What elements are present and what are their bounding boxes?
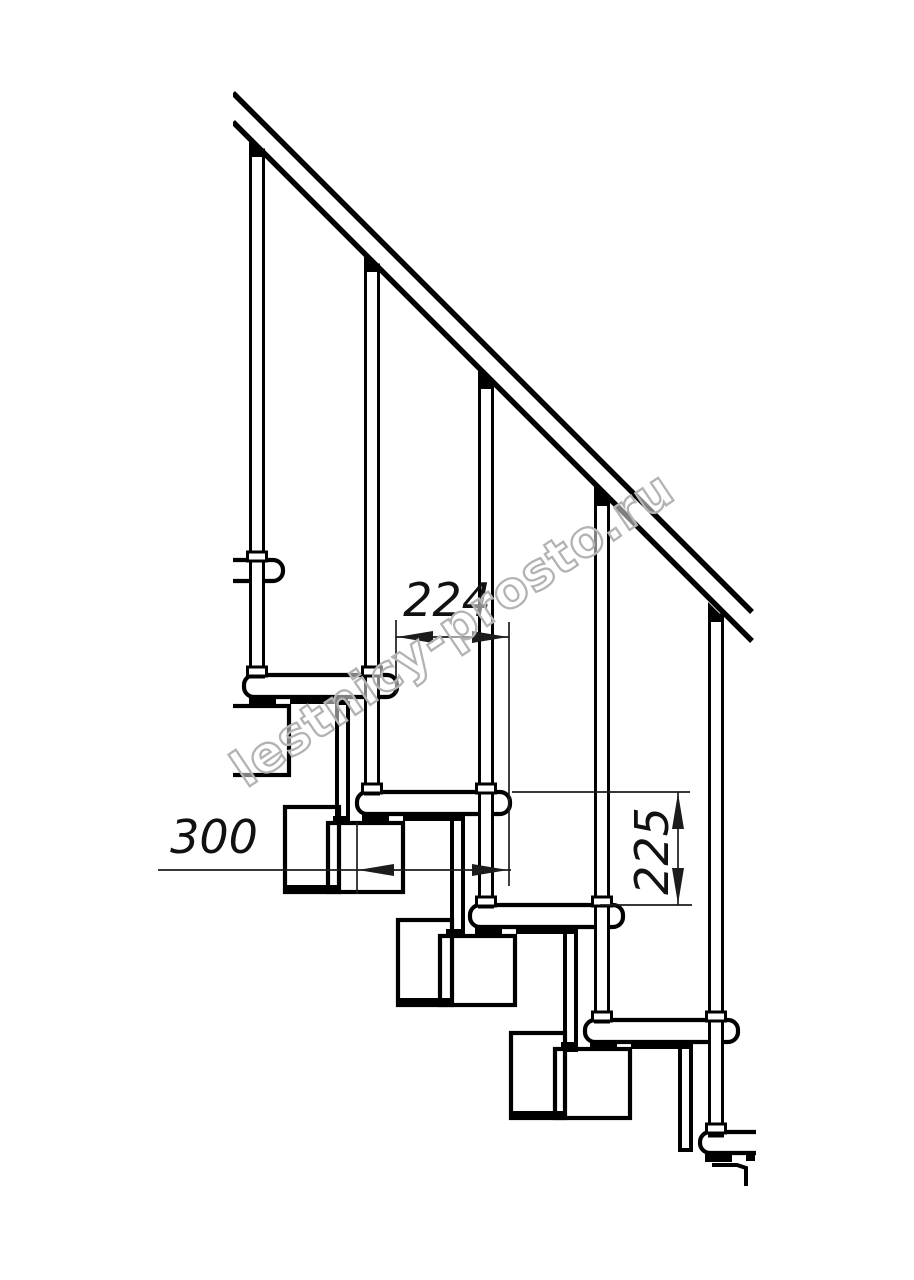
module-strip	[680, 1043, 691, 1150]
connector-plate	[631, 1040, 689, 1049]
baluster	[251, 150, 264, 677]
connector-plate	[746, 1152, 755, 1161]
baluster-collar	[248, 552, 267, 561]
connector-plate	[403, 812, 461, 821]
baluster	[596, 499, 609, 1022]
baluster-collar	[707, 1012, 726, 1021]
baluster	[480, 382, 493, 907]
left-crop-cover	[0, 0, 233, 1280]
sleeve-base-plate	[398, 998, 452, 1006]
baluster-collar	[363, 784, 382, 793]
module-sleeve	[398, 920, 452, 1005]
sleeve-base-plate	[511, 1111, 565, 1119]
baluster-collar	[593, 1012, 612, 1021]
baluster-collar	[477, 897, 496, 906]
baluster-collar	[707, 1124, 726, 1133]
dimension-step-rise-label: 225	[625, 807, 679, 895]
module-sleeve	[285, 807, 339, 892]
connector-plate	[516, 925, 574, 934]
staircase-drawing-canvas: 224 300 225 lestnicy-prosto.ru	[0, 0, 914, 1280]
connector-plate	[705, 1152, 732, 1162]
connector-tab	[446, 929, 463, 936]
connector-tab	[561, 1042, 578, 1049]
staircase-drawing: 224 300 225 lestnicy-prosto.ru	[0, 0, 914, 1280]
sleeve-base-plate	[285, 885, 339, 893]
connector-plate	[590, 1040, 617, 1050]
module-strip	[452, 815, 463, 936]
arrowhead-left	[358, 864, 394, 876]
connector-plate	[249, 695, 276, 705]
clipped-module-fragment	[712, 1165, 746, 1186]
baluster-collar	[477, 784, 496, 793]
balusters	[251, 150, 723, 1136]
connector-tab	[333, 816, 350, 823]
right-crop-cover	[756, 1095, 914, 1280]
connector-plate	[362, 812, 389, 822]
baluster-collar	[248, 667, 267, 676]
connector-plate	[475, 925, 502, 935]
dimension-tread-length-label: 300	[170, 810, 258, 864]
watermark-text: lestnicy-prosto.ru	[221, 459, 685, 798]
baluster	[710, 615, 723, 1136]
